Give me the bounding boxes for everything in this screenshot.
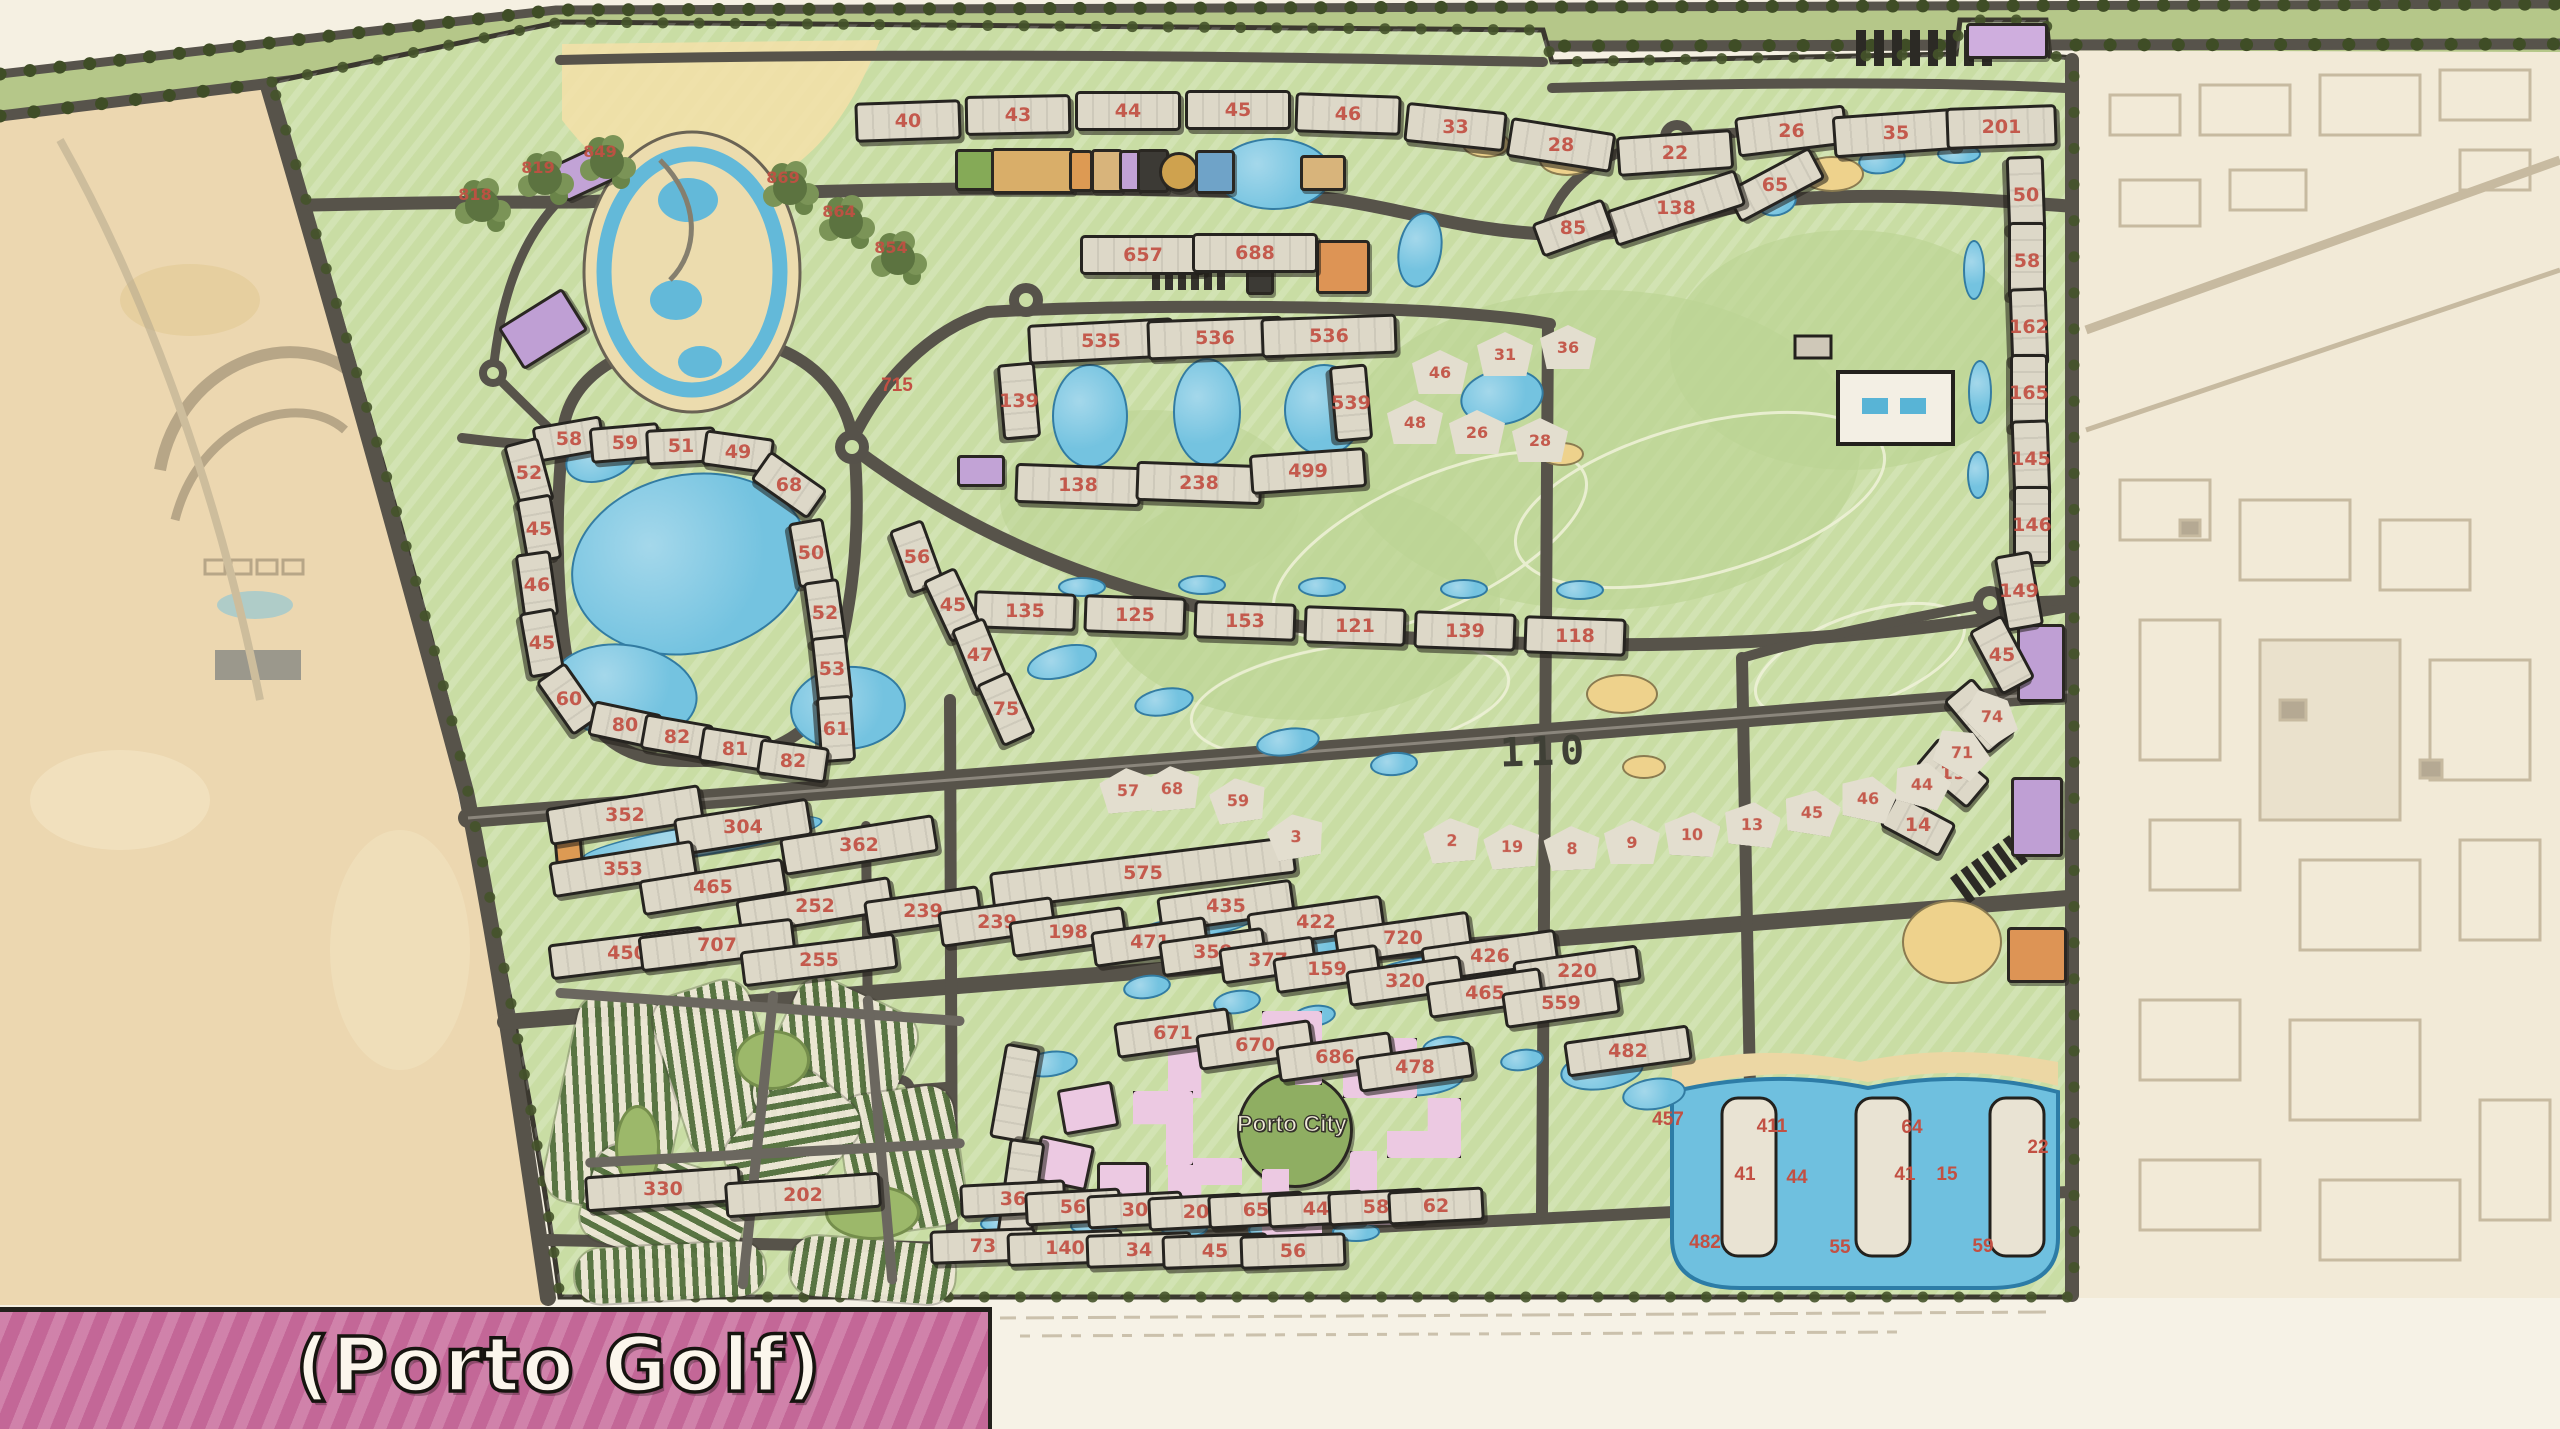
pool xyxy=(1023,637,1101,687)
amenity-block xyxy=(1069,150,1093,192)
building-number: 82 xyxy=(761,746,825,776)
building-number: 31 xyxy=(1477,332,1533,376)
villa: 31 xyxy=(1477,332,1533,376)
plan-overlay: 4043444546332822263520165138855058162165… xyxy=(0,0,2560,1429)
building-number: 482 xyxy=(1568,1036,1688,1066)
building-number: 40 xyxy=(858,104,958,138)
building: 125 xyxy=(1083,594,1186,636)
sand-bunker xyxy=(1902,900,2002,984)
building-number: 255 xyxy=(744,945,894,975)
villa-cluster: 819 xyxy=(528,161,562,195)
building-number: 869 xyxy=(759,149,807,205)
building-number: 45 xyxy=(922,590,984,620)
building: 35 xyxy=(1832,108,1961,159)
building-number: 56 xyxy=(1243,1237,1343,1265)
building-number: 125 xyxy=(1087,599,1183,631)
villa-cluster: 818 xyxy=(465,188,499,222)
building-number: 68 xyxy=(757,470,821,500)
pool xyxy=(1052,364,1128,468)
building-number: 139 xyxy=(984,385,1054,417)
building-number: 46 xyxy=(1298,97,1398,131)
building-number: 45 xyxy=(1969,639,2035,671)
building-number: 14 xyxy=(1887,809,1949,841)
building-number: 162 xyxy=(1993,311,2065,343)
building-number: 50 xyxy=(1990,179,2062,211)
pool xyxy=(1392,209,1449,291)
building: 539 xyxy=(1329,363,1373,442)
building-number: 48 xyxy=(1387,400,1443,444)
building: 56 xyxy=(1239,1232,1346,1270)
building-number: 149 xyxy=(1984,575,2054,607)
pool xyxy=(1556,580,1604,600)
building: 138 xyxy=(1605,169,1746,247)
building-number: 75 xyxy=(975,694,1037,724)
building-number: 50 xyxy=(781,538,841,568)
amenity-block xyxy=(1159,152,1199,192)
building-number: 33 xyxy=(1408,110,1503,144)
building-number: 35 xyxy=(1836,115,1956,151)
building: 45 xyxy=(1185,90,1291,130)
villa: 2 xyxy=(1422,816,1482,865)
building-number: 10 xyxy=(1664,812,1720,856)
map-label: 15 xyxy=(1936,1164,1957,1186)
building-number: 52 xyxy=(499,458,559,488)
building-number: 139 xyxy=(1417,615,1513,647)
villa: 45 xyxy=(1781,786,1843,838)
building: 26 xyxy=(1733,104,1848,157)
pool xyxy=(1369,750,1419,778)
building-number: 688 xyxy=(1195,236,1315,270)
pool xyxy=(1298,577,1346,597)
map-label: 41 xyxy=(1734,1164,1755,1186)
pool xyxy=(1967,451,1989,499)
building-number: 28 xyxy=(1511,128,1611,162)
building-number: 849 xyxy=(576,123,624,179)
amenity-block xyxy=(1195,150,1235,194)
amenity-block xyxy=(955,149,995,191)
map-label: 22 xyxy=(2027,1137,2048,1159)
building: 40 xyxy=(854,99,961,143)
building-number: 864 xyxy=(815,183,863,239)
building: 135 xyxy=(973,590,1076,632)
building-number: 478 xyxy=(1360,1052,1470,1082)
building-number: 8 xyxy=(1544,826,1600,870)
building: 46 xyxy=(1294,92,1401,136)
map-label: 59 xyxy=(1972,1236,1993,1258)
building-number: 46 xyxy=(507,570,567,600)
building-number: 539 xyxy=(1316,387,1386,419)
building-number: 58 xyxy=(1991,245,2063,277)
building: 44 xyxy=(1075,91,1181,131)
amenity-block xyxy=(2007,927,2067,983)
sand-bunker xyxy=(1586,674,1658,714)
building-number: 138 xyxy=(1611,192,1741,224)
plan-title: (Porto Golf) xyxy=(0,1320,988,1409)
building-number: 43 xyxy=(968,98,1068,132)
building: 330 xyxy=(584,1166,742,1213)
building-number: 19 xyxy=(1484,824,1540,868)
building-number: 819 xyxy=(514,139,562,195)
building-number: 118 xyxy=(1527,620,1623,652)
villa-cluster: 849 xyxy=(590,145,624,179)
building: 657 xyxy=(1080,235,1206,275)
villa: 8 xyxy=(1543,825,1601,872)
building-number: 536 xyxy=(1264,319,1394,353)
building xyxy=(989,1043,1041,1144)
building: 22 xyxy=(1616,129,1735,177)
building-number: 56 xyxy=(886,542,948,572)
building-number: 46 xyxy=(1840,776,1896,820)
building-number: 46 xyxy=(1412,350,1468,394)
building-number: 62 xyxy=(1391,1192,1481,1220)
building-number: 22 xyxy=(1620,136,1730,170)
pool xyxy=(1178,575,1226,595)
building-number: 13 xyxy=(1724,802,1780,846)
pool xyxy=(1499,1046,1546,1074)
building-number: 362 xyxy=(784,829,934,861)
building: 53 xyxy=(811,634,854,703)
building-number: 45 xyxy=(1188,93,1288,127)
building-number: 60 xyxy=(539,684,599,714)
building: 121 xyxy=(1303,605,1406,647)
pool xyxy=(1963,240,1985,300)
villa: 68 xyxy=(1142,764,1202,813)
building: 43 xyxy=(965,94,1072,136)
building: 153 xyxy=(1193,600,1296,642)
building: 139 xyxy=(997,361,1041,440)
map-label: Porto City xyxy=(1237,1111,1347,1138)
villa-cluster: 869 xyxy=(773,171,807,205)
building-number: 238 xyxy=(1139,466,1259,500)
building: 499 xyxy=(1249,447,1368,495)
villa: 59 xyxy=(1207,774,1269,825)
building-number: 59 xyxy=(1210,778,1266,822)
building-number: 165 xyxy=(1993,377,2065,409)
building-number: 559 xyxy=(1506,988,1616,1018)
villa: 13 xyxy=(1722,799,1782,849)
building: 238 xyxy=(1135,461,1262,505)
villa: 28 xyxy=(1512,418,1568,462)
amenity-block xyxy=(2011,777,2063,857)
amenity-block xyxy=(1966,23,2048,59)
building-number: 2 xyxy=(1424,818,1480,862)
master-plan-canvas: 4043444546332822263520165138855058162165… xyxy=(0,0,2560,1429)
building: 138 xyxy=(1014,463,1141,507)
building-number: 61 xyxy=(806,714,866,744)
amenity-block xyxy=(1133,1091,1193,1165)
building-number: 146 xyxy=(1996,509,2068,541)
pool xyxy=(1132,683,1196,721)
building-number: 36 xyxy=(1540,325,1596,369)
building: 139 xyxy=(1413,610,1516,652)
amenity-block xyxy=(1300,155,1346,191)
map-label: 55 xyxy=(1829,1237,1850,1259)
map-label: 482 xyxy=(1689,1232,1721,1254)
building: 201 xyxy=(1945,104,2057,150)
building: 62 xyxy=(1387,1187,1485,1226)
building-number: 28 xyxy=(1512,418,1568,462)
building-number: 657 xyxy=(1083,238,1203,272)
building-number: 330 xyxy=(588,1174,738,1204)
sand-bunker xyxy=(1622,755,1666,779)
building: 118 xyxy=(1523,615,1626,657)
amenity-block xyxy=(1316,240,1370,294)
building-number: 26 xyxy=(1739,114,1844,148)
building-number: 45 xyxy=(512,628,572,658)
building: 75 xyxy=(976,671,1037,748)
building-number: 201 xyxy=(1949,109,2054,145)
map-label: 64 xyxy=(1901,1117,1922,1139)
building: 202 xyxy=(724,1172,882,1219)
title-banner: (Porto Golf) xyxy=(0,1307,992,1429)
building-number: 145 xyxy=(1995,443,2067,475)
villa-cluster: 864 xyxy=(829,205,863,239)
building-number: 45 xyxy=(509,514,569,544)
building-number: 45 xyxy=(1784,790,1840,834)
map-label: 41 xyxy=(1894,1164,1915,1186)
building-number: 68 xyxy=(1144,766,1200,810)
villa: 36 xyxy=(1540,325,1596,369)
building: 33 xyxy=(1403,102,1508,152)
amenity-block xyxy=(957,455,1005,487)
building-number: 53 xyxy=(802,654,862,684)
map-label: 411 xyxy=(1757,1116,1788,1138)
building-number: 9 xyxy=(1604,820,1660,864)
building: 82 xyxy=(756,738,830,783)
building-number: 818 xyxy=(451,166,499,222)
pool xyxy=(1440,579,1488,599)
villa: 9 xyxy=(1604,820,1660,864)
map-label: 715 xyxy=(881,375,913,397)
building-number: 44 xyxy=(1078,94,1178,128)
building: 536 xyxy=(1260,314,1397,359)
pool xyxy=(1254,724,1321,761)
building-number: 135 xyxy=(977,595,1073,627)
building-number: 854 xyxy=(867,219,915,275)
amenity-block xyxy=(498,288,589,371)
building-number: 121 xyxy=(1307,610,1403,642)
building-number: 3 xyxy=(1268,814,1324,858)
map-label: 457 xyxy=(1652,1109,1684,1131)
building-number: 499 xyxy=(1253,454,1363,488)
villa: 48 xyxy=(1387,400,1443,444)
building-number: 85 xyxy=(1538,213,1608,243)
villa-cluster: 854 xyxy=(881,241,915,275)
building-number: 47 xyxy=(949,640,1011,670)
amenity-block xyxy=(991,148,1075,194)
amenity-block xyxy=(1387,1098,1461,1158)
villa: 10 xyxy=(1663,811,1721,858)
building-number: 202 xyxy=(728,1180,878,1210)
villa: 46 xyxy=(1412,350,1468,394)
building: 688 xyxy=(1192,233,1318,273)
pool xyxy=(1173,358,1241,466)
building-number: 52 xyxy=(795,598,855,628)
building: 85 xyxy=(1531,198,1615,258)
villa: 19 xyxy=(1482,822,1542,871)
amenity-block xyxy=(1056,1080,1119,1135)
map-label: 110 xyxy=(1499,727,1591,776)
building-number: 153 xyxy=(1197,605,1293,637)
building-number: 138 xyxy=(1018,468,1138,502)
pool xyxy=(1968,360,1992,424)
map-label: 44 xyxy=(1786,1167,1807,1189)
building: 28 xyxy=(1506,117,1617,173)
